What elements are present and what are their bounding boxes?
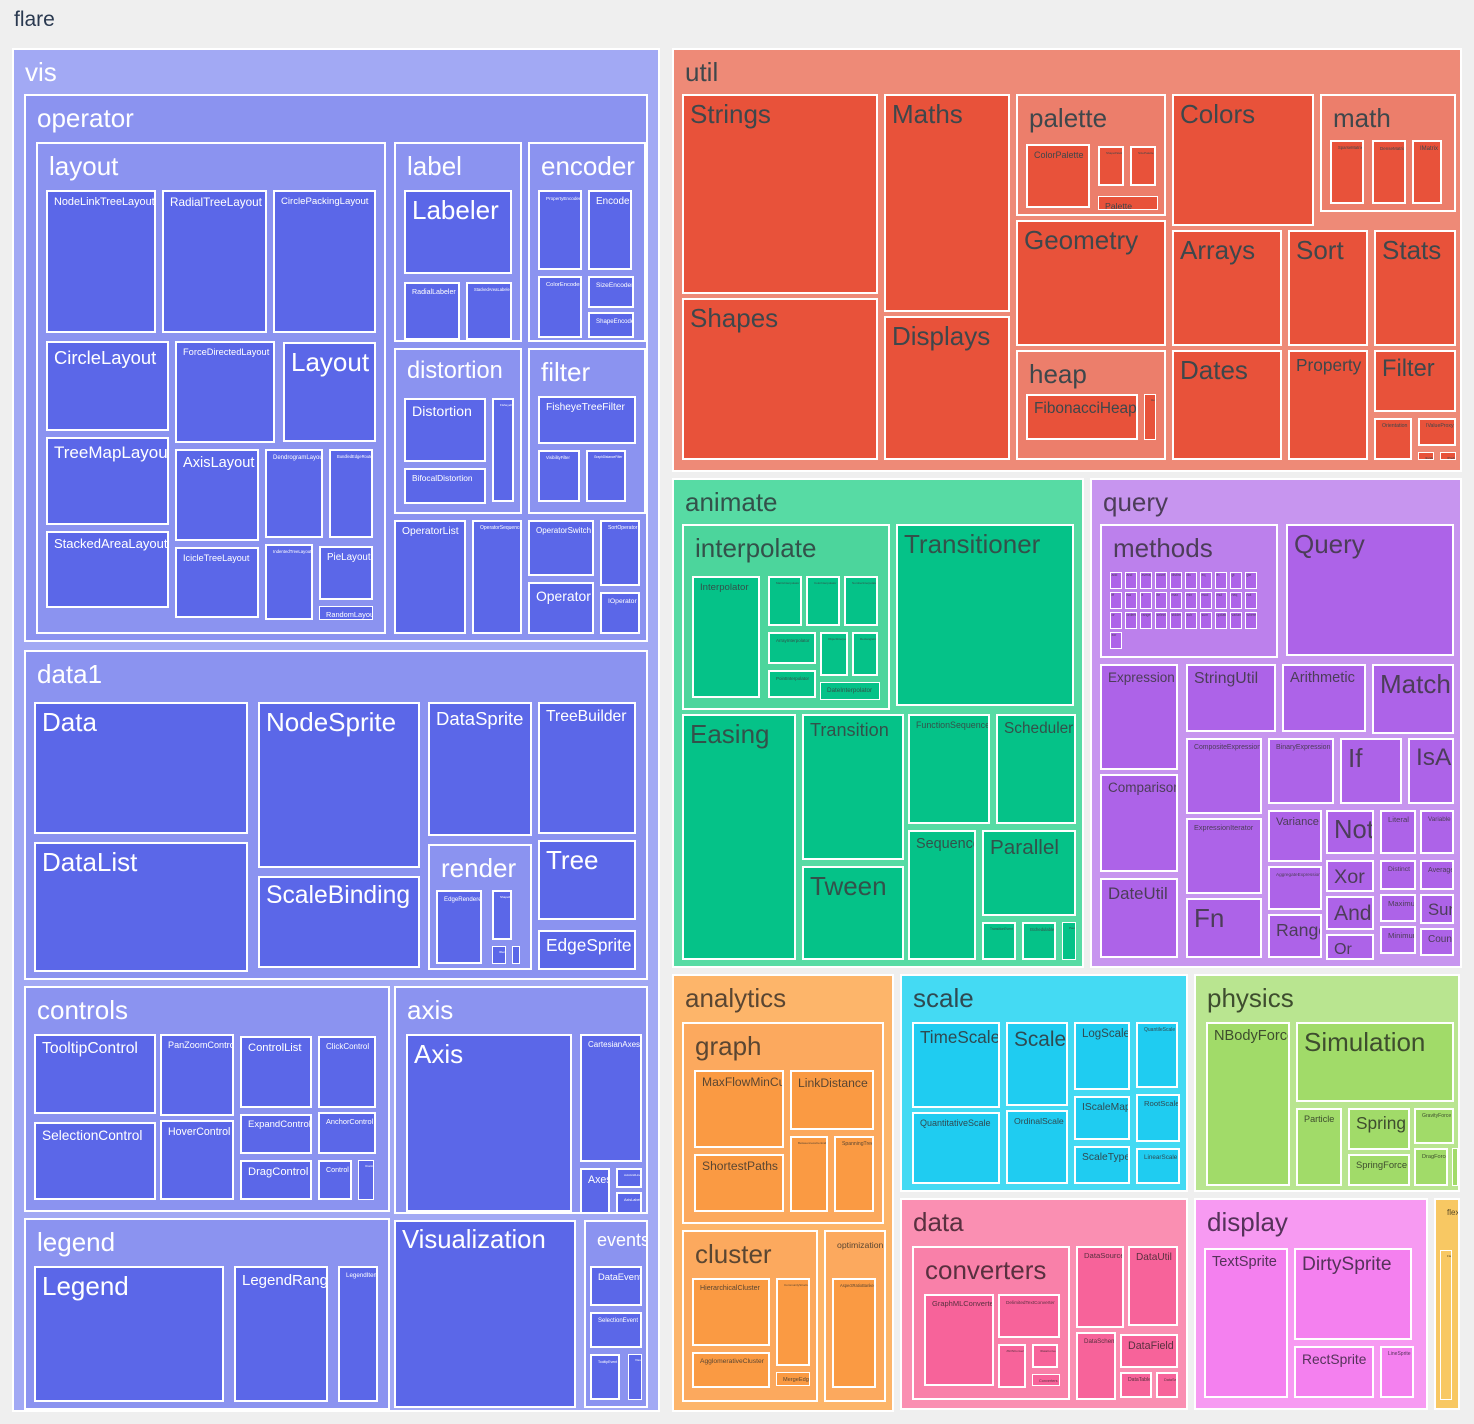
panzoomcontrol-cell[interactable]: PanZoomControl — [160, 1034, 234, 1116]
comparison-label: Comparison — [1102, 776, 1176, 800]
cluster-label: cluster — [684, 1232, 816, 1278]
colors-cell[interactable]: Colors — [1172, 94, 1314, 226]
operatorlist-cell[interactable]: OperatorList — [394, 520, 466, 634]
rectangleinterpolator-cell[interactable]: RectangleInterpolator — [852, 632, 878, 676]
method-fn-cell[interactable]: fn — [1215, 572, 1227, 589]
transition-cell[interactable]: Transition — [802, 714, 904, 860]
range-cell[interactable]: Range — [1268, 914, 1322, 958]
fn-label: Fn — [1188, 900, 1260, 938]
shortestpaths-cell[interactable]: ShortestPaths — [694, 1154, 784, 1212]
sizepalette-cell[interactable]: SizePalette — [1130, 146, 1156, 186]
and-cell[interactable]: And — [1326, 896, 1374, 930]
radialtreelayout-cell[interactable]: RadialTreeLayout — [162, 190, 267, 333]
count-cell[interactable]: Count — [1420, 928, 1454, 956]
dateutil-label: DateUtil — [1102, 880, 1176, 907]
method-range-cell[interactable]: range — [1140, 612, 1152, 629]
ischedulable-cell[interactable]: ISchedulable — [1022, 922, 1056, 960]
parallel-label: Parallel — [984, 832, 1074, 864]
shapes-cell[interactable]: Shapes — [682, 298, 878, 460]
method-xor-cell[interactable]: xor — [1110, 632, 1122, 649]
variable-cell[interactable]: Variable — [1420, 810, 1454, 854]
method-mul-cell[interactable]: mul — [1215, 592, 1227, 609]
method-orderby-cell[interactable]: orderby — [1125, 612, 1137, 629]
sum-cell[interactable]: Sum — [1420, 894, 1454, 924]
and-label: And — [1328, 898, 1372, 930]
chart-title: flare — [14, 8, 55, 32]
springforce-label: SpringForce — [1350, 1156, 1408, 1175]
heapnode-label: HeapNode — [1145, 395, 1156, 406]
method-count-cell[interactable]: count — [1155, 572, 1167, 589]
datatable-label: DataTable — [1122, 1374, 1150, 1388]
visibilityfilter-cell[interactable]: VisibilityFilter — [538, 450, 580, 502]
dataevent-cell[interactable]: DataEvent — [590, 1266, 642, 1306]
interpolator-cell[interactable]: Interpolator — [692, 576, 760, 698]
method-lte-cell[interactable]: lte — [1155, 592, 1167, 609]
linearscale-cell[interactable]: LinearScale — [1136, 1148, 1180, 1184]
dataschema-cell[interactable]: DataSchema — [1076, 1332, 1116, 1400]
objectinterpolator-label: ObjectInterpolator — [822, 634, 846, 645]
selectionevent-cell[interactable]: SelectionEvent — [590, 1312, 642, 1348]
scalebinding-cell[interactable]: ScaleBinding — [258, 876, 420, 968]
method-lt-cell[interactable]: lt — [1140, 592, 1152, 609]
axislabel-label: AxisLabel — [618, 1194, 640, 1206]
strings-label: Strings — [684, 96, 876, 134]
indentedtreelayout-cell[interactable]: IndentedTreeLayout — [265, 544, 313, 620]
expressioniterator-cell[interactable]: ExpressionIterator — [1186, 818, 1262, 894]
nodesprite-cell[interactable]: NodeSprite — [258, 702, 420, 868]
distinct-cell[interactable]: Distinct — [1380, 860, 1416, 890]
flex-label: flex — [1436, 1200, 1458, 1225]
cartesianaxes-label: CartesianAxes — [582, 1036, 640, 1053]
dataschema-label: DataSchema — [1078, 1334, 1114, 1349]
operatorswitch-cell[interactable]: OperatorSwitch — [528, 520, 594, 576]
bundlededgerouter-cell[interactable]: BundledEdgeRouter — [329, 449, 373, 538]
datasource-cell[interactable]: DataSource — [1076, 1246, 1124, 1328]
tween-cell[interactable]: Tween — [802, 866, 904, 960]
scale-label: scale — [902, 976, 1186, 1022]
springforce-cell[interactable]: SpringForce — [1348, 1154, 1410, 1186]
spring-label: Spring — [1350, 1110, 1408, 1138]
tree-cell[interactable]: Tree — [538, 840, 636, 920]
colorencoder-cell[interactable]: ColorEncoder — [538, 276, 582, 338]
ipredicate-cell[interactable]: IPredicate — [1440, 452, 1456, 460]
spring-cell[interactable]: Spring — [1348, 1108, 1410, 1150]
idataconverter-cell[interactable]: IDataConverter — [1032, 1344, 1058, 1368]
fn-cell[interactable]: Fn — [1186, 898, 1262, 958]
layout-label: layout — [38, 144, 384, 190]
randomlayout-cell[interactable]: RandomLayout — [319, 606, 373, 620]
radiallabeler-cell[interactable]: RadialLabeler — [404, 282, 460, 340]
method-eq-cell[interactable]: eq — [1200, 572, 1212, 589]
datalist-label: DataList — [36, 844, 246, 882]
fisheyetreefilter-cell[interactable]: FisheyeTreeFilter — [538, 396, 636, 444]
parallel-cell[interactable]: Parallel — [982, 830, 1076, 916]
method-select-cell[interactable]: select — [1155, 612, 1167, 629]
flare-treemap: flare visoperatorlayoutNodeLinkTreeLayou… — [0, 0, 1474, 1424]
method-or-cell[interactable]: or — [1110, 612, 1122, 629]
math-label: math — [1322, 96, 1454, 142]
anchorcontrol-cell[interactable]: AnchorControl — [318, 1112, 376, 1154]
linesprite-cell[interactable]: LineSprite — [1380, 1346, 1414, 1398]
visualizationevent-cell[interactable]: VisualizationEvent — [628, 1354, 642, 1400]
methods-group[interactable]: methodsaddandaveragecountdistinctdiveqfn… — [1100, 524, 1278, 658]
method-isa-cell[interactable]: isa — [1125, 592, 1137, 609]
nbodyforce-label: NBodyForce — [1208, 1024, 1288, 1049]
numberinterpolator-cell[interactable]: NumberInterpolator — [844, 576, 878, 626]
jsonconverter-cell[interactable]: JSONConverter — [998, 1344, 1026, 1388]
palette-cell[interactable]: Palette — [1098, 196, 1158, 210]
match-cell[interactable]: Match — [1372, 664, 1454, 734]
distortion-cell[interactable]: Distortion — [404, 398, 486, 462]
iscalemap-cell[interactable]: IScaleMap — [1074, 1096, 1130, 1140]
tooltipcontrol-cell[interactable]: TooltipControl — [34, 1034, 156, 1114]
ioperator-label: IOperator — [602, 594, 638, 610]
tooltipevent-cell[interactable]: TooltipEvent — [590, 1354, 620, 1400]
labeler-cell[interactable]: Labeler — [404, 190, 512, 274]
comparison-cell[interactable]: Comparison — [1100, 774, 1178, 872]
tween-label: Tween — [804, 868, 902, 906]
stats-label: Stats — [1376, 232, 1454, 270]
converters-cell[interactable]: Converters — [1032, 1374, 1060, 1386]
forcedirectedlayout-cell[interactable]: ForceDirectedLayout — [175, 341, 275, 443]
quantilescale-cell[interactable]: QuantileScale — [1136, 1022, 1178, 1088]
legenditem-cell[interactable]: LegendItem — [338, 1266, 378, 1402]
method-neq-cell[interactable]: neq — [1230, 592, 1242, 609]
simulation-label: Simulation — [1298, 1024, 1452, 1062]
radiallabeler-label: RadialLabeler — [406, 284, 458, 300]
method-max-cell[interactable]: max — [1170, 592, 1182, 609]
timescale-cell[interactable]: TimeScale — [912, 1022, 1000, 1108]
method-distinct-cell[interactable]: distinct — [1170, 572, 1182, 589]
method-div-cell[interactable]: div — [1185, 572, 1197, 589]
arrowtype-cell[interactable]: ArrowType — [512, 946, 520, 964]
axes-cell[interactable]: Axes — [580, 1168, 610, 1214]
quantilescale-label: QuantileScale — [1138, 1024, 1176, 1038]
datatable-cell[interactable]: DataTable — [1120, 1372, 1152, 1398]
matrixinterpolator-cell[interactable]: MatrixInterpolator — [768, 576, 802, 626]
query-cell[interactable]: Query — [1286, 524, 1454, 656]
sparsematrix-cell[interactable]: SparseMatrix — [1330, 140, 1364, 204]
iforce-cell[interactable]: IForce — [1452, 1148, 1458, 1186]
isa-cell[interactable]: IsA — [1408, 738, 1454, 804]
maximum-cell[interactable]: Maximum — [1380, 894, 1416, 922]
method-sum-cell[interactable]: sum — [1200, 612, 1212, 629]
hierarchicalcluster-label: HierarchicalCluster — [694, 1280, 768, 1296]
arithmetic-cell[interactable]: Arithmetic — [1282, 664, 1366, 732]
operatorsequence-cell[interactable]: OperatorSequence — [472, 520, 522, 634]
dragforce-cell[interactable]: DragForce — [1414, 1148, 1448, 1186]
pause-cell[interactable]: Pause — [1062, 922, 1076, 960]
rootscale-cell[interactable]: RootScale — [1136, 1094, 1180, 1142]
sortoperator-cell[interactable]: SortOperator — [600, 520, 640, 586]
dataset-cell[interactable]: DataSet — [1156, 1372, 1178, 1398]
literal-cell[interactable]: Literal — [1380, 810, 1416, 854]
scale-label: Scale — [1008, 1024, 1066, 1056]
method-mod-cell[interactable]: mod — [1200, 592, 1212, 609]
minimum-cell[interactable]: Minimum — [1380, 926, 1416, 954]
data-label: data — [902, 1200, 1186, 1246]
axisgridline-label: AxisGridLine — [618, 1170, 640, 1181]
method-variance-cell[interactable]: variance — [1230, 612, 1242, 629]
communitystructure-cell[interactable]: CommunityStructure — [776, 1278, 810, 1366]
method-stddev-cell[interactable]: stddev — [1170, 612, 1182, 629]
dateutil-cell[interactable]: DateUtil — [1100, 878, 1178, 958]
dendrogramlayout-cell[interactable]: DendrogramLayout — [265, 449, 323, 538]
arrays-label: Arrays — [1174, 232, 1280, 270]
ordinalscale-cell[interactable]: OrdinalScale — [1006, 1110, 1068, 1184]
dirtysprite-cell[interactable]: DirtySprite — [1294, 1248, 1412, 1340]
sparsematrix-label: SparseMatrix — [1332, 142, 1362, 155]
simulation-cell[interactable]: Simulation — [1296, 1022, 1454, 1102]
agglomerativecluster-cell[interactable]: AgglomerativeCluster — [692, 1352, 770, 1388]
stackedarealayout-cell[interactable]: StackedAreaLayout — [46, 531, 169, 608]
dates-cell[interactable]: Dates — [1172, 350, 1282, 460]
colorpalette-cell[interactable]: ColorPalette — [1026, 144, 1090, 208]
axislayout-cell[interactable]: AxisLayout — [175, 449, 259, 541]
graphmlconverter-cell[interactable]: GraphMLConverter — [924, 1294, 994, 1386]
shapeencoder-cell[interactable]: ShapeEncoder — [588, 312, 634, 338]
pointinterpolator-cell[interactable]: PointInterpolator — [768, 670, 816, 698]
util-label: util — [674, 50, 1460, 96]
numberinterpolator-label: NumberInterpolator — [846, 578, 876, 589]
forcedirectedlayout-label: ForceDirectedLayout — [177, 343, 273, 362]
strings-cell[interactable]: Strings — [682, 94, 878, 294]
logscale-cell[interactable]: LogScale — [1074, 1022, 1130, 1090]
heapnode-cell[interactable]: HeapNode — [1144, 394, 1156, 440]
hovercontrol-cell[interactable]: HoverControl — [160, 1120, 234, 1200]
orientation-cell[interactable]: Orientation — [1374, 418, 1412, 460]
ioperator-cell[interactable]: IOperator — [600, 592, 640, 634]
axis-cell[interactable]: Axis — [406, 1034, 572, 1212]
geometry-label: Geometry — [1018, 222, 1164, 260]
clickcontrol-cell[interactable]: ClickControl — [318, 1036, 376, 1108]
shaperenderer-cell[interactable]: ShapeRenderer — [492, 890, 512, 940]
legend-cell[interactable]: Legend — [34, 1266, 224, 1402]
transitionevent-cell[interactable]: TransitionEvent — [982, 922, 1016, 960]
transitionevent-label: TransitionEvent — [984, 924, 1014, 936]
cartesianaxes-cell[interactable]: CartesianAxes — [580, 1034, 642, 1162]
average-cell[interactable]: Average — [1420, 860, 1454, 890]
variance-cell[interactable]: Variance — [1268, 810, 1322, 862]
sequence-cell[interactable]: Sequence — [908, 830, 976, 960]
clickcontrol-label: ClickControl — [320, 1038, 374, 1055]
sort-cell[interactable]: Sort — [1288, 230, 1368, 346]
pointinterpolator-label: PointInterpolator — [770, 672, 814, 685]
scale-cell[interactable]: Scale — [1006, 1022, 1068, 1106]
graphdistancefilter-cell[interactable]: GraphDistanceFilter — [586, 450, 626, 502]
geometry-cell[interactable]: Geometry — [1016, 220, 1166, 346]
icontrol-cell[interactable]: IControl — [358, 1160, 374, 1200]
hierarchicalcluster-cell[interactable]: HierarchicalCluster — [692, 1278, 770, 1346]
expression-cell[interactable]: Expression — [1100, 664, 1178, 770]
range-label: Range — [1270, 916, 1320, 944]
dateinterpolator-cell[interactable]: DateInterpolator — [820, 682, 880, 700]
axisgridline-cell[interactable]: AxisGridLine — [616, 1168, 642, 1188]
method-not-cell[interactable]: not — [1245, 592, 1257, 609]
stackedarealabeler-cell[interactable]: StackedAreaLabeler — [466, 282, 512, 340]
control-cell[interactable]: Control — [318, 1160, 352, 1200]
selectioncontrol-label: SelectionControl — [36, 1124, 154, 1148]
rectsprite-cell[interactable]: RectSprite — [1294, 1346, 1374, 1398]
operator-cell[interactable]: Operator — [528, 582, 594, 634]
not-cell[interactable]: Not — [1326, 810, 1374, 854]
fisheyedistortion-cell[interactable]: FisheyeDistortion — [492, 398, 514, 502]
icicletreelayout-cell[interactable]: IcicleTreeLayout — [175, 547, 259, 618]
controllist-cell[interactable]: ControlList — [240, 1036, 312, 1108]
matrixinterpolator-label: MatrixInterpolator — [770, 578, 800, 589]
logscale-label: LogScale — [1076, 1024, 1128, 1045]
palette-label: Palette — [1099, 197, 1157, 210]
or-cell[interactable]: Or — [1326, 934, 1374, 960]
expandcontrol-cell[interactable]: ExpandControl — [240, 1114, 312, 1154]
arrayinterpolator-label: ArrayInterpolator — [770, 634, 814, 647]
method-min-cell[interactable]: min — [1185, 592, 1197, 609]
stringutil-cell[interactable]: StringUtil — [1186, 664, 1276, 732]
sizeencoder-cell[interactable]: SizeEncoder — [588, 276, 634, 308]
heap-label: heap — [1018, 352, 1164, 398]
edgesprite-cell[interactable]: EdgeSprite — [538, 930, 636, 970]
displays-cell[interactable]: Displays — [884, 316, 1010, 460]
circlelayout-cell[interactable]: CircleLayout — [46, 341, 169, 431]
method-sub-cell[interactable]: sub — [1185, 612, 1197, 629]
tooltipcontrol-label: TooltipControl — [36, 1036, 154, 1062]
densematrix-label: DenseMatrix — [1374, 142, 1404, 155]
aggregateexpression-cell[interactable]: AggregateExpression — [1268, 866, 1322, 910]
variable-label: Variable — [1422, 812, 1452, 827]
compositeexpression-cell[interactable]: CompositeExpression — [1186, 738, 1262, 814]
stats-cell[interactable]: Stats — [1374, 230, 1456, 346]
filter-label: Filter — [1376, 352, 1454, 387]
xor-cell[interactable]: Xor — [1326, 860, 1374, 892]
method-update-cell[interactable]: update — [1215, 612, 1227, 629]
transition-label: Transition — [804, 716, 902, 745]
axis-label: axis — [396, 988, 646, 1034]
betweennesscentrality-cell[interactable]: BetweennessCentrality — [790, 1136, 828, 1212]
datasprite-cell[interactable]: DataSprite — [428, 702, 532, 836]
propertyencoder-cell[interactable]: PropertyEncoder — [538, 190, 582, 270]
layout-cell[interactable]: Layout — [283, 342, 376, 442]
datalist-cell[interactable]: DataList — [34, 842, 248, 972]
axislabel-cell[interactable]: AxisLabel — [616, 1192, 642, 1214]
encoder-cell[interactable]: Encoder — [588, 190, 632, 270]
selectionevent-label: SelectionEvent — [592, 1314, 640, 1329]
propertyencoder-label: PropertyEncoder — [540, 192, 580, 205]
spanningtree-cell[interactable]: SpanningTree — [834, 1136, 874, 1212]
treemaplayout-cell[interactable]: TreeMapLayout — [46, 437, 169, 525]
stackedarealabeler-label: StackedAreaLabeler — [468, 284, 510, 297]
nbodyforce-cell[interactable]: NBodyForce — [1206, 1022, 1290, 1186]
scheduler-cell[interactable]: Scheduler — [996, 714, 1076, 824]
dateinterpolator-label: DateInterpolator — [821, 683, 879, 698]
scheduler-label: Scheduler — [998, 716, 1074, 742]
fibonacciheap-cell[interactable]: FibonacciHeap — [1026, 394, 1138, 440]
encoder-label: encoder — [530, 144, 644, 190]
method-add-cell[interactable]: add — [1110, 572, 1122, 589]
filter-cell[interactable]: Filter — [1374, 350, 1456, 412]
method-gt-cell[interactable]: gt — [1230, 572, 1242, 589]
optimization-label: optimization — [826, 1232, 884, 1258]
graphmlconverter-label: GraphMLConverter — [926, 1296, 992, 1313]
method-gte-cell[interactable]: gte — [1245, 572, 1257, 589]
scaletype-cell[interactable]: ScaleType — [1074, 1146, 1130, 1184]
distortion-label: distortion — [396, 350, 520, 393]
data1-label: data1 — [26, 652, 646, 698]
ischedulable-label: ISchedulable — [1024, 924, 1054, 937]
maths-cell[interactable]: Maths — [884, 94, 1010, 312]
arrayinterpolator-cell[interactable]: ArrayInterpolator — [768, 632, 816, 664]
binaryexpression-cell[interactable]: BinaryExpression — [1268, 738, 1334, 804]
nodelinktreelayout-label: NodeLinkTreeLayout — [48, 192, 154, 213]
delimitedtextconverter-cell[interactable]: DelimitedTextConverter — [998, 1294, 1060, 1338]
legendrange-cell[interactable]: LegendRange — [234, 1266, 328, 1402]
shapepalette-cell[interactable]: ShapePalette — [1098, 146, 1124, 186]
ivalueproxy-cell[interactable]: IValueProxy — [1418, 418, 1456, 446]
aspectratiobanker-cell[interactable]: AspectRatioBanker — [832, 1278, 876, 1388]
data-cell[interactable]: Data — [34, 702, 248, 834]
expandcontrol-label: ExpandControl — [242, 1116, 310, 1135]
easing-cell[interactable]: Easing — [682, 714, 796, 960]
method-and-cell[interactable]: and — [1125, 572, 1137, 589]
distortion-label: Distortion — [406, 400, 484, 424]
objectinterpolator-cell[interactable]: ObjectInterpolator — [820, 632, 848, 676]
mergeedge-cell[interactable]: MergeEdge — [776, 1372, 810, 1386]
match-label: Match — [1374, 666, 1452, 704]
transitioner-cell[interactable]: Transitioner — [896, 524, 1074, 706]
colorpalette-label: ColorPalette — [1028, 146, 1088, 164]
property-cell[interactable]: Property — [1288, 350, 1368, 460]
irenderer-cell[interactable]: IRenderer — [492, 946, 506, 964]
linkdistance-cell[interactable]: LinkDistance — [790, 1070, 874, 1130]
maxflowmincut-label: MaxFlowMinCut — [696, 1072, 782, 1094]
treebuilder-cell[interactable]: TreeBuilder — [538, 702, 636, 834]
nodesprite-label: NodeSprite — [260, 704, 418, 742]
dragcontrol-cell[interactable]: DragControl — [240, 1160, 312, 1200]
edgesprite-label: EdgeSprite — [540, 932, 634, 960]
functionsequence-cell[interactable]: FunctionSequence — [908, 714, 990, 824]
expressioniterator-label: ExpressionIterator — [1188, 820, 1260, 836]
ievaluable-cell[interactable]: IEvaluable — [1418, 452, 1434, 460]
datafield-cell[interactable]: DataField — [1120, 1334, 1178, 1368]
maxflowmincut-cell[interactable]: MaxFlowMinCut — [694, 1070, 784, 1148]
method-where-cell[interactable]: where — [1245, 612, 1257, 629]
flarevis-cell[interactable]: FlareVis — [1440, 1250, 1452, 1400]
bifocaldistortion-cell[interactable]: BifocalDistortion — [404, 468, 486, 504]
imatrix-cell[interactable]: IMatrix — [1412, 140, 1442, 204]
colorinterpolator-cell[interactable]: ColorInterpolator — [806, 576, 840, 626]
selectioncontrol-cell[interactable]: SelectionControl — [34, 1122, 156, 1200]
if-cell[interactable]: If — [1340, 738, 1402, 804]
rootscale-label: RootScale — [1138, 1096, 1178, 1113]
circlepackinglayout-cell[interactable]: CirclePackingLayout — [273, 190, 376, 333]
edgerenderer-cell[interactable]: EdgeRenderer — [436, 890, 482, 964]
nodelinktreelayout-cell[interactable]: NodeLinkTreeLayout — [46, 190, 156, 333]
palette-label: palette — [1018, 96, 1164, 142]
method-average-cell[interactable]: average — [1140, 572, 1152, 589]
colorencoder-label: ColorEncoder — [540, 278, 580, 293]
pielayout-cell[interactable]: PieLayout — [319, 546, 373, 600]
textsprite-cell[interactable]: TextSprite — [1204, 1248, 1288, 1398]
visualization-cell[interactable]: Visualization — [394, 1220, 576, 1408]
arrays-cell[interactable]: Arrays — [1172, 230, 1282, 346]
animate-label: animate — [674, 480, 1082, 526]
gravityforce-cell[interactable]: GravityForce — [1414, 1108, 1454, 1144]
datautil-cell[interactable]: DataUtil — [1128, 1246, 1178, 1326]
densematrix-cell[interactable]: DenseMatrix — [1372, 140, 1406, 204]
particle-cell[interactable]: Particle — [1296, 1108, 1342, 1186]
method-iff-cell[interactable]: iff — [1110, 592, 1122, 609]
quantitativescale-cell[interactable]: QuantitativeScale — [912, 1112, 1000, 1184]
irenderer-label: IRenderer — [493, 947, 505, 958]
